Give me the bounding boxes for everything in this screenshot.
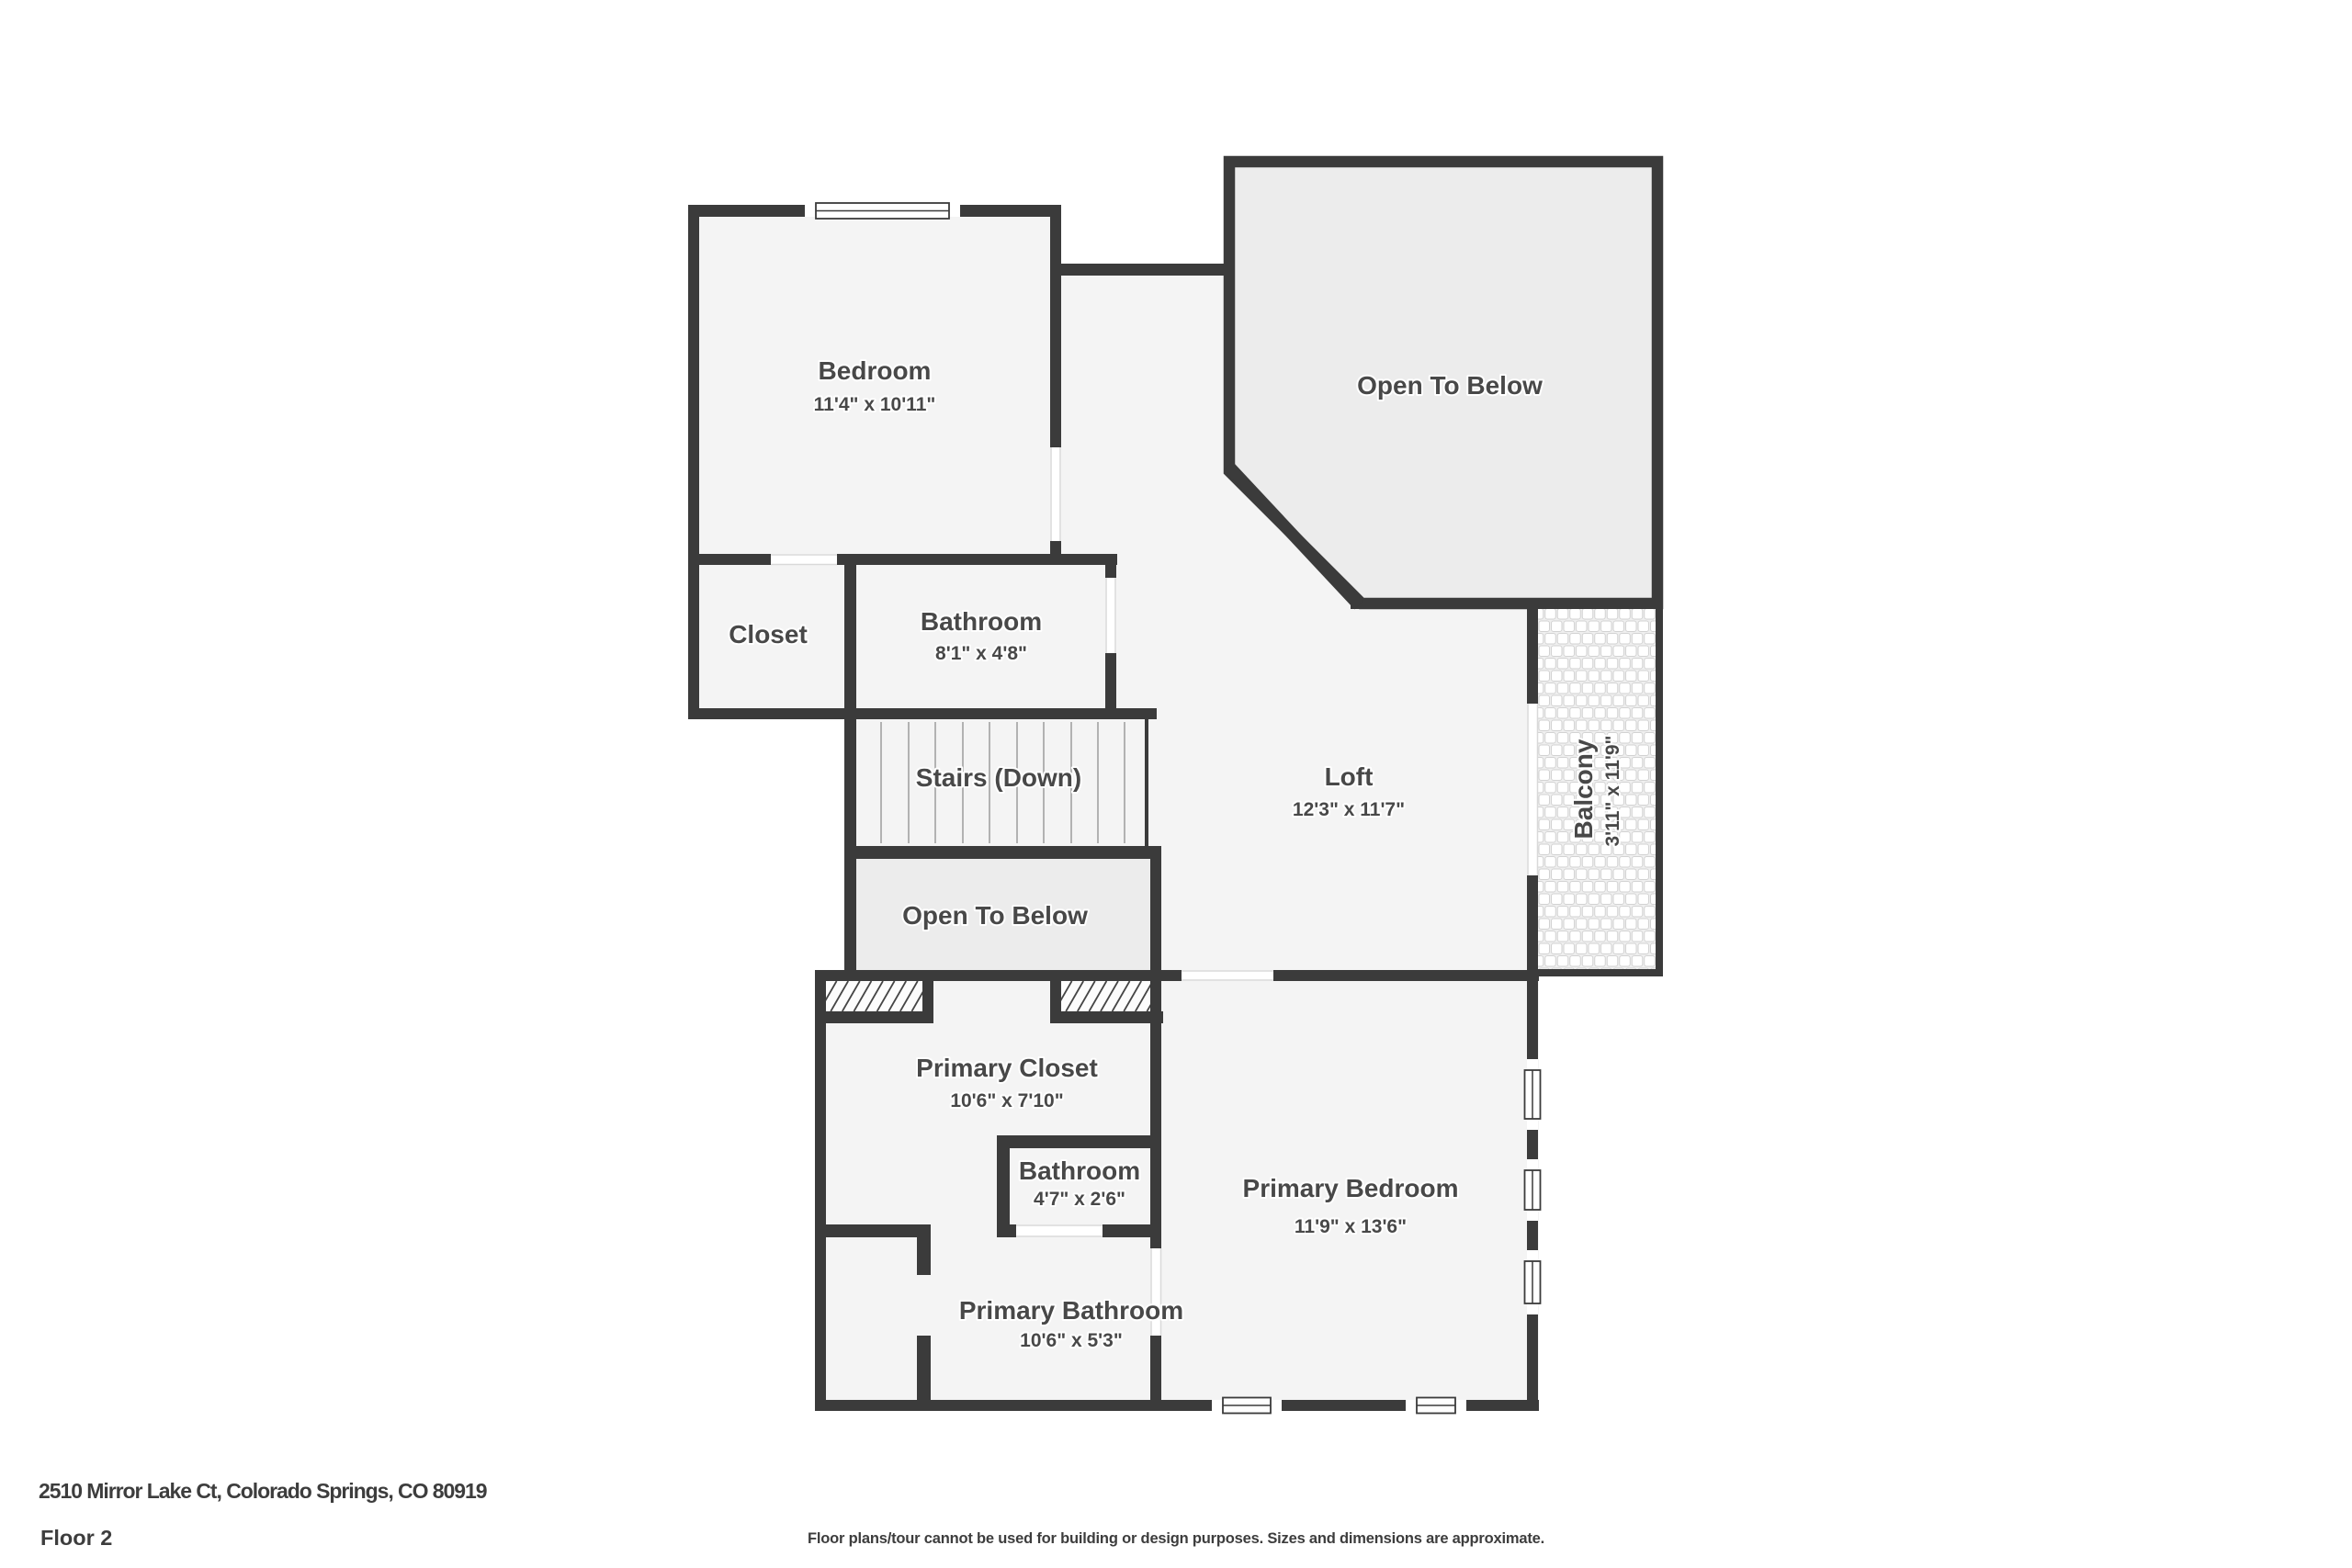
svg-text:Balcony: Balcony bbox=[1569, 739, 1598, 839]
svg-text:11'9" x 13'6": 11'9" x 13'6" bbox=[1295, 1216, 1407, 1237]
svg-text:2510 Mirror Lake Ct, Colorado: 2510 Mirror Lake Ct, Colorado Springs, C… bbox=[39, 1479, 487, 1503]
svg-text:Closet: Closet bbox=[729, 620, 808, 649]
svg-text:Primary Closet: Primary Closet bbox=[916, 1054, 1098, 1082]
svg-text:10'6" x 7'10": 10'6" x 7'10" bbox=[950, 1090, 1063, 1111]
svg-text:Loft: Loft bbox=[1325, 762, 1374, 791]
svg-text:Bedroom: Bedroom bbox=[819, 356, 932, 385]
svg-text:Stairs (Down): Stairs (Down) bbox=[916, 763, 1081, 792]
svg-text:3'11" x 11'9": 3'11" x 11'9" bbox=[1602, 735, 1623, 846]
svg-text:Open To Below: Open To Below bbox=[902, 901, 1088, 930]
svg-text:8'1" x 4'8": 8'1" x 4'8" bbox=[935, 643, 1027, 664]
svg-text:Open To Below: Open To Below bbox=[1357, 371, 1543, 400]
svg-text:Primary Bathroom: Primary Bathroom bbox=[959, 1296, 1183, 1325]
svg-text:Floor plans/tour cannot be use: Floor plans/tour cannot be used for buil… bbox=[808, 1530, 1544, 1547]
svg-text:Primary Bedroom: Primary Bedroom bbox=[1243, 1174, 1459, 1202]
svg-text:Floor 2: Floor 2 bbox=[40, 1526, 112, 1550]
svg-text:Bathroom: Bathroom bbox=[921, 607, 1042, 636]
svg-text:11'4" x 10'11": 11'4" x 10'11" bbox=[814, 394, 936, 415]
svg-text:12'3" x 11'7": 12'3" x 11'7" bbox=[1293, 799, 1405, 820]
svg-text:Bathroom: Bathroom bbox=[1019, 1156, 1140, 1185]
svg-text:4'7" x 2'6": 4'7" x 2'6" bbox=[1034, 1189, 1125, 1210]
svg-text:10'6" x 5'3": 10'6" x 5'3" bbox=[1020, 1330, 1123, 1351]
